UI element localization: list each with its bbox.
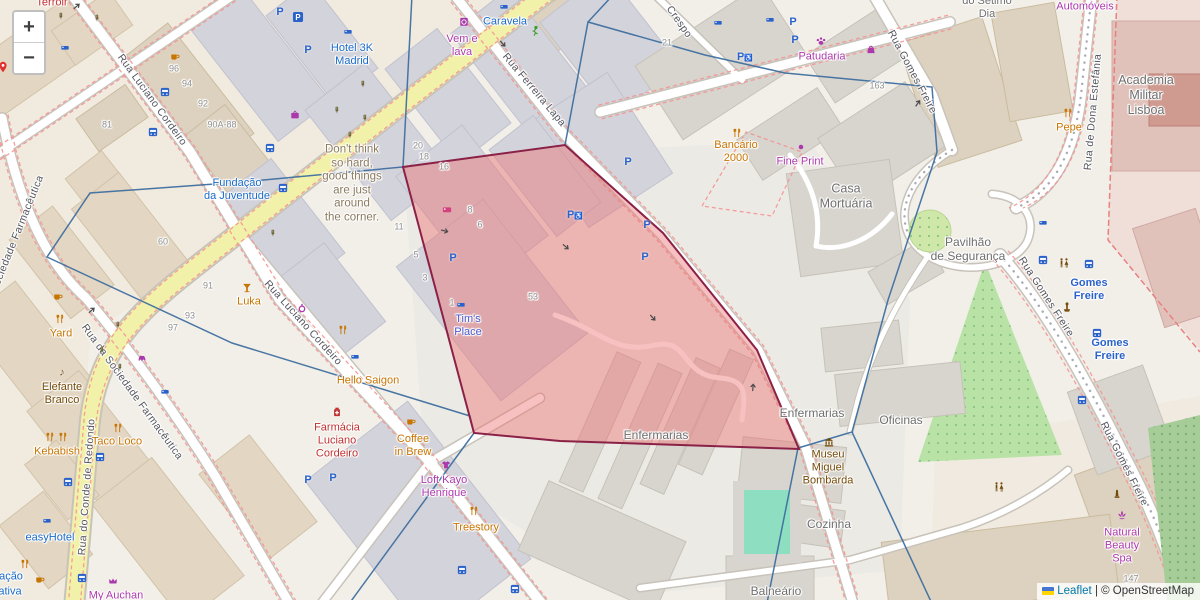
zoom-control: + −	[12, 10, 46, 75]
zoom-out-button[interactable]: −	[14, 43, 44, 73]
attribution-bar: Leaflet | © OpenStreetMap	[1037, 583, 1200, 600]
map-base-layer	[0, 0, 1200, 600]
zoom-in-button[interactable]: +	[14, 12, 44, 43]
map-canvas[interactable]: Rua Luciano CordeiroRua Luciano Cordeiro…	[0, 0, 1200, 600]
leaflet-link[interactable]: Leaflet	[1057, 585, 1092, 597]
ukraine-flag-icon	[1042, 587, 1054, 595]
attribution-separator: |	[1092, 585, 1101, 597]
osm-attribution[interactable]: © OpenStreetMap	[1101, 585, 1194, 597]
